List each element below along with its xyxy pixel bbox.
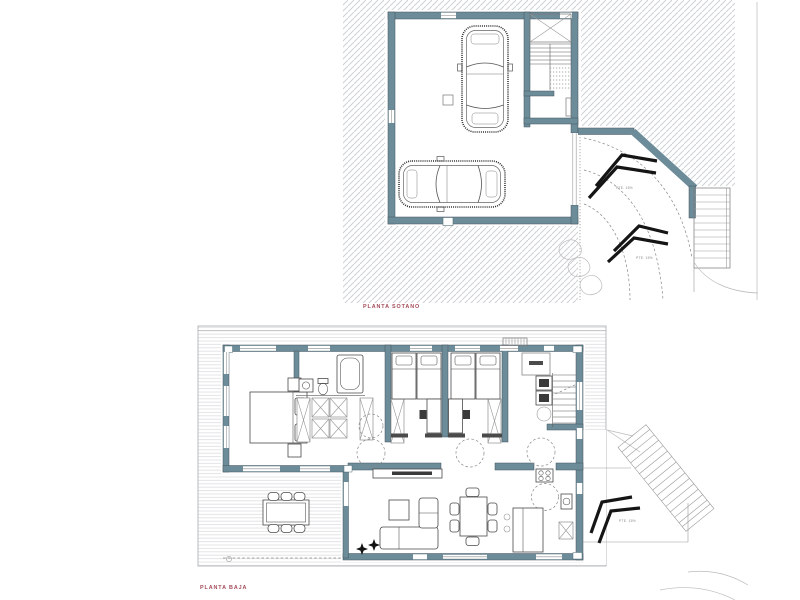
chair bbox=[488, 520, 497, 532]
chair bbox=[450, 520, 459, 532]
ground-plan: PTE. 15% PLANTA BAJA bbox=[198, 326, 748, 600]
chair bbox=[281, 493, 292, 501]
chair bbox=[281, 525, 292, 533]
basement-plan: PTE. 15% PTE. 15% PLANTA SOTANO bbox=[343, 0, 758, 310]
ground-driveway bbox=[583, 425, 748, 600]
toilet bbox=[318, 379, 328, 384]
kerb-curve-2 bbox=[688, 571, 748, 585]
wall-oven bbox=[561, 494, 572, 509]
bed bbox=[417, 353, 441, 399]
dining-table bbox=[460, 497, 487, 536]
wardrobe-x bbox=[297, 398, 310, 442]
ramp-steps bbox=[618, 425, 714, 532]
basement-plan-title: PLANTA SOTANO bbox=[363, 304, 420, 310]
chair bbox=[294, 525, 305, 533]
bathtub bbox=[337, 355, 363, 393]
chair bbox=[450, 503, 459, 515]
car-top bbox=[458, 26, 513, 132]
desk bbox=[449, 399, 463, 433]
chair bbox=[268, 493, 279, 501]
bed bbox=[451, 353, 475, 399]
chair bbox=[466, 488, 479, 497]
floorplan-sheet: PTE. 15% PTE. 15% PLANTA SOTANO bbox=[0, 0, 800, 600]
tv-console bbox=[373, 469, 442, 478]
chair bbox=[294, 493, 305, 501]
car-bottom bbox=[399, 157, 505, 212]
sink bbox=[299, 379, 313, 392]
kerb-curve-3 bbox=[660, 588, 735, 600]
ground-plan-title: PLANTA BAJA bbox=[200, 585, 247, 591]
architectural-drawing: PTE. 15% PTE. 15% PLANTA SOTANO bbox=[0, 0, 800, 600]
basement-slope-label-1: PTE. 15% bbox=[616, 186, 633, 190]
desk-chair bbox=[420, 410, 427, 419]
terrace-table bbox=[263, 500, 309, 525]
stove bbox=[536, 469, 553, 482]
basement-slope-label-2: PTE. 15% bbox=[636, 256, 653, 260]
chair bbox=[268, 525, 279, 533]
closet-label-mark bbox=[529, 361, 543, 365]
bed bbox=[476, 353, 500, 399]
terrace-dining-set bbox=[263, 493, 309, 533]
coffee-table bbox=[389, 500, 409, 520]
chair bbox=[488, 503, 497, 515]
nightstand bbox=[288, 444, 301, 457]
appliance-x bbox=[559, 522, 573, 539]
chair bbox=[466, 537, 479, 546]
bed bbox=[392, 353, 416, 399]
desk-chair bbox=[463, 410, 470, 419]
desk bbox=[427, 399, 441, 433]
ground-slope-label: PTE. 15% bbox=[619, 519, 636, 523]
